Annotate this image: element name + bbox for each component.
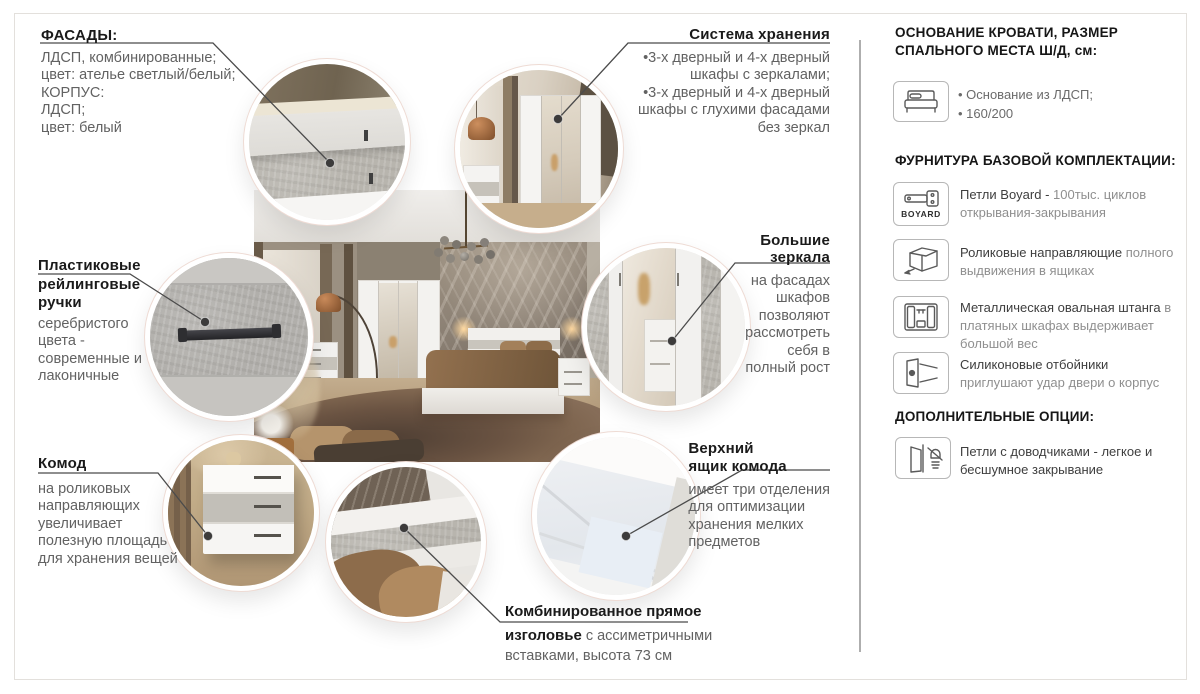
option-icon-box [895,437,951,479]
infographic-page: ФАСАДЫ: ЛДСП, комбинированные; цвет: ате… [0,0,1200,694]
bed-platform [422,388,564,414]
callout-mirrors: Большие зеркала на фасадах шкафов позвол… [745,233,830,377]
zoom-circle-storage [455,65,623,233]
zoom-circle-mirrors [582,243,750,411]
callout-title: Комбинированное прямое [505,603,701,620]
callout-facades: ФАСАДЫ: ЛДСП, комбинированные; цвет: ате… [41,27,235,137]
sidebar-heading-hardware: ФУРНИТУРА БАЗОВОЙ КОМПЛЕКТАЦИИ: [895,152,1176,170]
callout-body: ЛДСП, комбинированные; цвет: ателье свет… [41,50,235,137]
drawer-handle [364,130,368,141]
zoom-circle-handles [145,253,313,421]
boyard-hinge-icon [902,189,940,209]
wardrobe [520,95,601,208]
door-handle [619,273,621,286]
headboard [468,328,560,340]
wardrobe-rail-icon [901,301,941,333]
nightstand [558,358,590,396]
chest-of-drawers [203,465,294,554]
callout-body: имеет три отделения для оптимизации хран… [688,482,830,552]
hardware-item: Петли Boyard - 100тыс. циклов открывания… [960,186,1182,222]
boyard-label: BOYARD [901,210,941,219]
hardware-item: Металлическая овальная штанга в платяных… [960,299,1182,353]
callout-title: ФАСАДЫ: [41,27,235,44]
callout-title: Верхний ящик комода [688,440,830,475]
hardware-icon-box: BOYARD [893,182,949,226]
callout-handles: Пластиковые рейлинговые ручки серебристо… [38,257,142,385]
drawer-handle [369,173,373,184]
hardware-item: Силиконовые отбойники приглушают удар дв… [960,356,1182,392]
callout-headboard: Комбинированное прямое изголовье с ассим… [505,602,712,666]
hardware-icon-box [893,296,949,338]
hardware-item: Роликовые направляющие полного выдвижени… [960,244,1182,280]
sidebar-heading-bed-base: ОСНОВАНИЕ КРОВАТИ, РАЗМЕР СПАЛЬНОГО МЕСТ… [895,24,1118,60]
drawer-handle [254,505,281,508]
callout-body: •3-х дверный и 4-х дверный шкафы с зерка… [638,50,830,137]
lamp-shade [316,293,341,312]
callout-dresser: Комод на роликовых направляющих увеличив… [38,455,178,568]
pendant-lamp [468,117,495,139]
zoom-circle-dresser [163,435,319,591]
door-handle [677,273,679,286]
callout-top-drawer: Верхний ящик комода имеет три отделения … [688,440,830,552]
pendant-bulbs [460,252,469,261]
zoom-circle-facades [244,59,410,225]
hardware-icon-box [893,352,949,394]
zoom-circle-headboard [326,462,486,622]
mirror-door [622,248,677,406]
callout-body: на фасадах шкафов позволяют рассмотреть … [745,273,830,377]
callout-title: Пластиковые рейлинговые ручки [38,257,142,313]
callout-title: Система хранения [638,26,830,43]
drawer-slide-icon [901,244,941,276]
callout-body: на роликовых направляющих увеличивает по… [38,481,178,568]
drawer-handle [254,476,281,479]
hardware-icon-box [893,239,949,281]
zoom-circle-top-drawer [532,432,700,600]
option-item: Петли с доводчиками - легкое и бесшумное… [960,443,1182,479]
callout-title: Комод [38,455,178,472]
callout-storage: Система хранения •3-х дверный и 4-х двер… [638,26,830,137]
bed-base-bullets: • Основание из ЛДСП; • 160/200 [958,85,1093,123]
bed-icon-box [893,81,949,122]
floor [460,203,618,228]
door-bumper-icon [901,357,941,389]
bed-icon [901,89,941,115]
callout-title: Большие зеркала [745,233,830,266]
sidebar-heading-options: ДОПОЛНИТЕЛЬНЫЕ ОПЦИИ: [895,408,1094,426]
drawer-handle [254,534,281,537]
soft-close-hinge-icon [903,442,943,474]
callout-body: серебристого цвета - современные и лакон… [38,316,142,386]
